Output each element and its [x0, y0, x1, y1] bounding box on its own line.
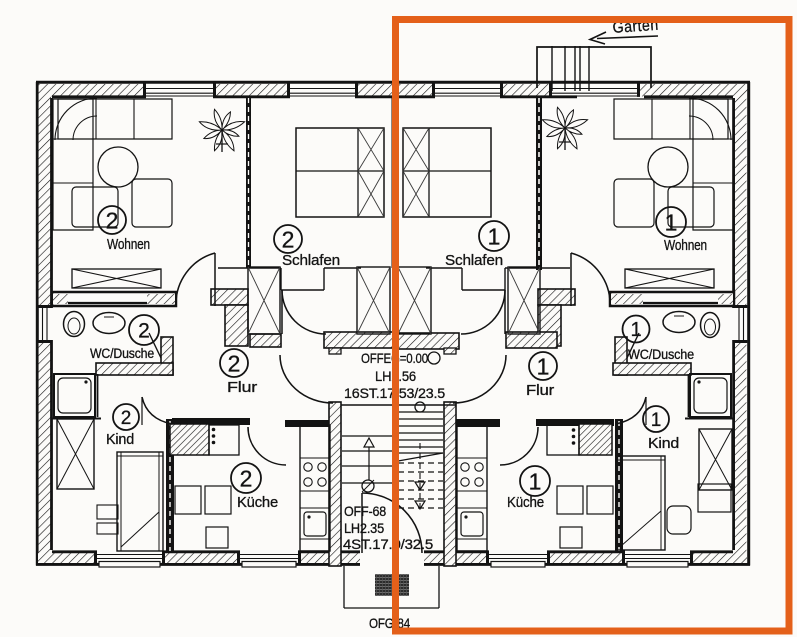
svg-text:1: 1: [488, 223, 501, 249]
svg-text:2: 2: [240, 465, 253, 491]
svg-text:1: 1: [651, 410, 662, 431]
svg-text:Flur: Flur: [227, 379, 257, 396]
svg-text:LH2.35: LH2.35: [344, 520, 384, 536]
svg-text:Flur: Flur: [526, 382, 554, 399]
svg-text:Kind: Kind: [106, 431, 134, 448]
svg-text:Kind: Kind: [648, 435, 679, 452]
svg-text:Wohnen: Wohnen: [664, 237, 707, 254]
svg-text:1: 1: [529, 468, 542, 494]
svg-text:1: 1: [665, 209, 678, 235]
svg-text:2: 2: [138, 320, 150, 343]
svg-text:1: 1: [537, 353, 550, 379]
svg-text:Küche: Küche: [507, 494, 544, 511]
svg-text:Küche: Küche: [237, 494, 278, 511]
svg-text:2: 2: [228, 350, 241, 376]
svg-text:WC/Dusche: WC/Dusche: [90, 346, 154, 361]
svg-text:Schlafen: Schlafen: [282, 252, 340, 269]
svg-text:OFF-68: OFF-68: [344, 503, 386, 519]
svg-text:2: 2: [106, 207, 119, 233]
svg-text:2: 2: [121, 408, 132, 429]
svg-text:WC/Dusche: WC/Dusche: [628, 347, 694, 362]
svg-text:1: 1: [630, 319, 641, 341]
svg-text:Wohnen: Wohnen: [107, 236, 150, 253]
svg-text:2: 2: [282, 226, 295, 252]
svg-text:Schlafen: Schlafen: [445, 252, 503, 269]
svg-text:4ST.17.0/32.5: 4ST.17.0/32.5: [343, 536, 433, 552]
